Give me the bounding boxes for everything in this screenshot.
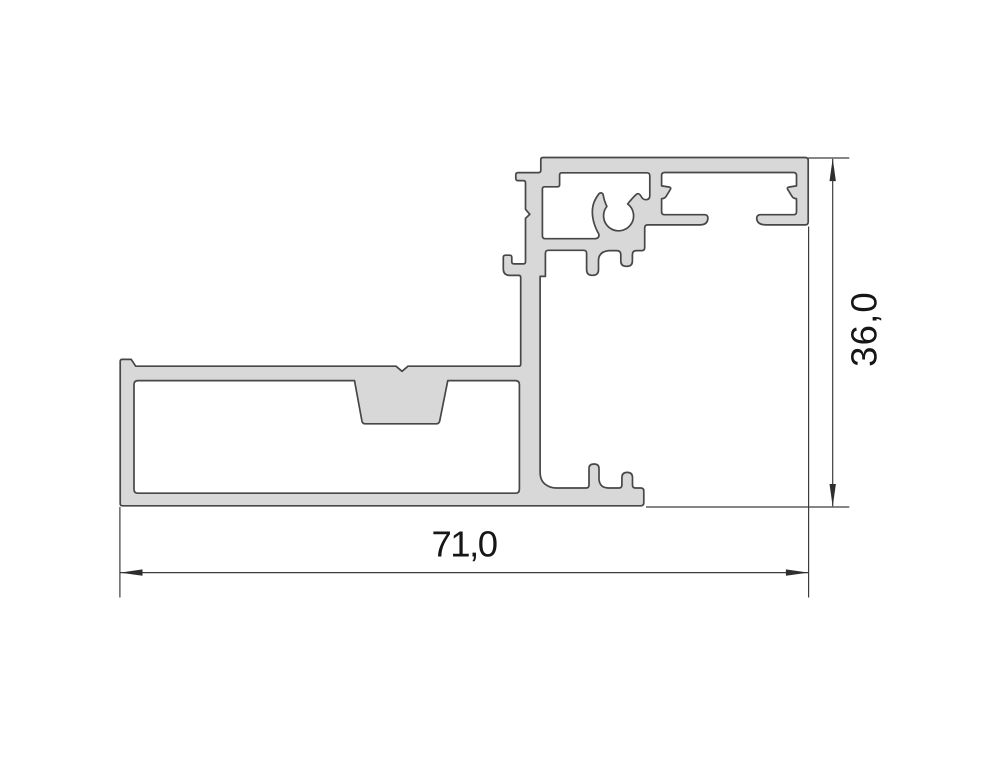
- svg-text:36,0: 36,0: [844, 291, 885, 367]
- svg-text:71,0: 71,0: [431, 524, 496, 565]
